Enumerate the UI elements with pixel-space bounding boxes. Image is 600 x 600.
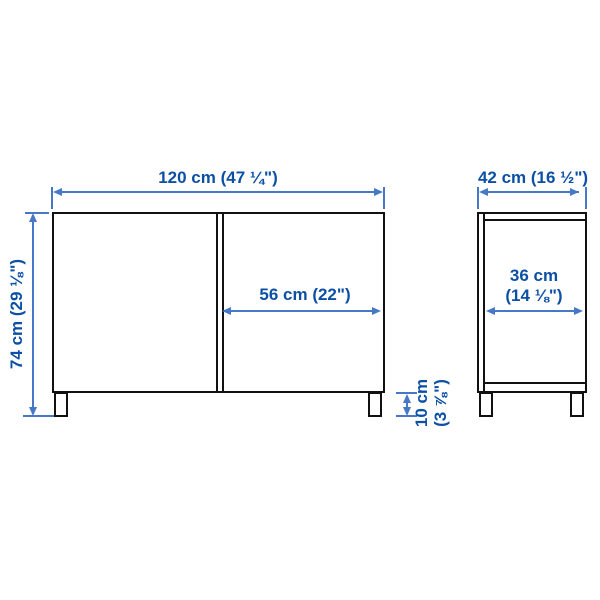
arrowhead-down-icon [403, 407, 411, 416]
arrowhead-right-icon [372, 307, 381, 315]
dimension-line [32, 218, 34, 410]
bottom-panel-line [485, 382, 585, 384]
cabinet-leg-side-right [570, 392, 584, 417]
cabinet-leg-side-left [479, 392, 493, 417]
arrowhead-right-icon [374, 188, 383, 196]
arrowhead-left-icon [479, 188, 488, 196]
door-width-label: 56 cm (22") [230, 285, 380, 305]
arrowhead-left-icon [53, 188, 62, 196]
door-divider [216, 212, 224, 393]
inner-depth-label: 36 cm (14 ⅛") [474, 266, 594, 306]
dimension-line [486, 191, 579, 193]
front-height-label: 74 cm (29 ⅛") [7, 259, 27, 369]
dimension-line [229, 310, 375, 312]
extension-tick [585, 187, 587, 209]
product-dimension-diagram: 120 cm (47 ¼") 74 cm (29 ⅛") 56 cm (22") [0, 0, 600, 600]
cabinet-leg-front-left [54, 392, 68, 417]
leg-height-label-line2: (3 ⅞") [431, 379, 450, 427]
front-width-label: 120 cm (47 ¼") [88, 168, 348, 188]
arrowhead-up-icon [29, 213, 37, 222]
arrowhead-up-icon [403, 394, 411, 403]
arrowhead-right-icon [570, 188, 579, 196]
dimension-line [60, 191, 377, 193]
inner-depth-label-line1: 36 cm [474, 266, 594, 286]
top-panel-line [485, 219, 585, 221]
inner-depth-label-line2: (14 ⅛") [474, 286, 594, 306]
arrowhead-left-icon [222, 307, 231, 315]
arrowhead-left-icon [486, 307, 495, 315]
extension-tick [383, 187, 385, 209]
cabinet-leg-front-right [368, 392, 382, 417]
leg-height-label-line1: 10 cm [412, 379, 431, 427]
dimension-line [492, 310, 577, 312]
depth-label: 42 cm (16 ½") [452, 168, 600, 188]
arrowhead-down-icon [29, 407, 37, 416]
leg-height-label: 10 cm (3 ⅞") [412, 379, 450, 427]
extension-tick [23, 415, 56, 417]
arrowhead-right-icon [574, 307, 583, 315]
